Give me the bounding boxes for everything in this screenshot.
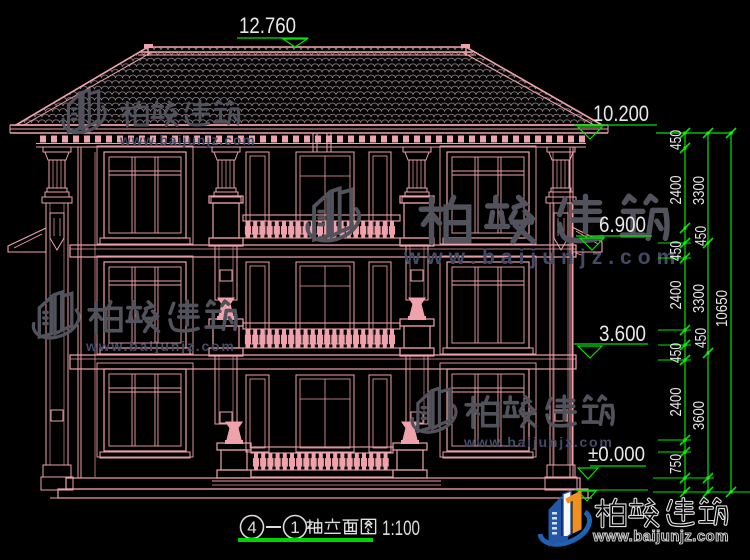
svg-text:±0.000: ±0.000: [588, 443, 645, 466]
svg-text:450: 450: [693, 328, 710, 348]
svg-text:3600: 3600: [691, 401, 708, 430]
svg-text:450: 450: [668, 241, 685, 261]
svg-text:www.baijunjz.com: www.baijunjz.com: [592, 528, 729, 545]
svg-text:www.baijunjz.com: www.baijunjz.com: [85, 338, 236, 354]
svg-text:450: 450: [668, 343, 685, 363]
svg-text:10650: 10650: [714, 290, 731, 327]
svg-text:450: 450: [693, 226, 710, 246]
svg-text:www.baijunjz.com: www.baijunjz.com: [119, 133, 256, 148]
svg-text:2400: 2400: [668, 387, 685, 416]
svg-text:3300: 3300: [691, 284, 708, 313]
svg-text:www.baijunjz.com: www.baijunjz.com: [403, 246, 681, 269]
svg-text:6.900: 6.900: [599, 212, 646, 237]
svg-text:10.200: 10.200: [593, 101, 649, 126]
svg-text:1: 1: [290, 518, 299, 537]
svg-text:3300: 3300: [691, 176, 708, 205]
svg-text:12.760: 12.760: [239, 13, 296, 38]
svg-text:2400: 2400: [668, 280, 685, 309]
svg-text:450: 450: [668, 130, 685, 150]
svg-text:4: 4: [247, 518, 256, 537]
svg-text:2400: 2400: [668, 175, 685, 204]
svg-text:1:100: 1:100: [382, 517, 420, 540]
svg-text:3.600: 3.600: [599, 321, 646, 346]
svg-text:750: 750: [668, 454, 685, 474]
